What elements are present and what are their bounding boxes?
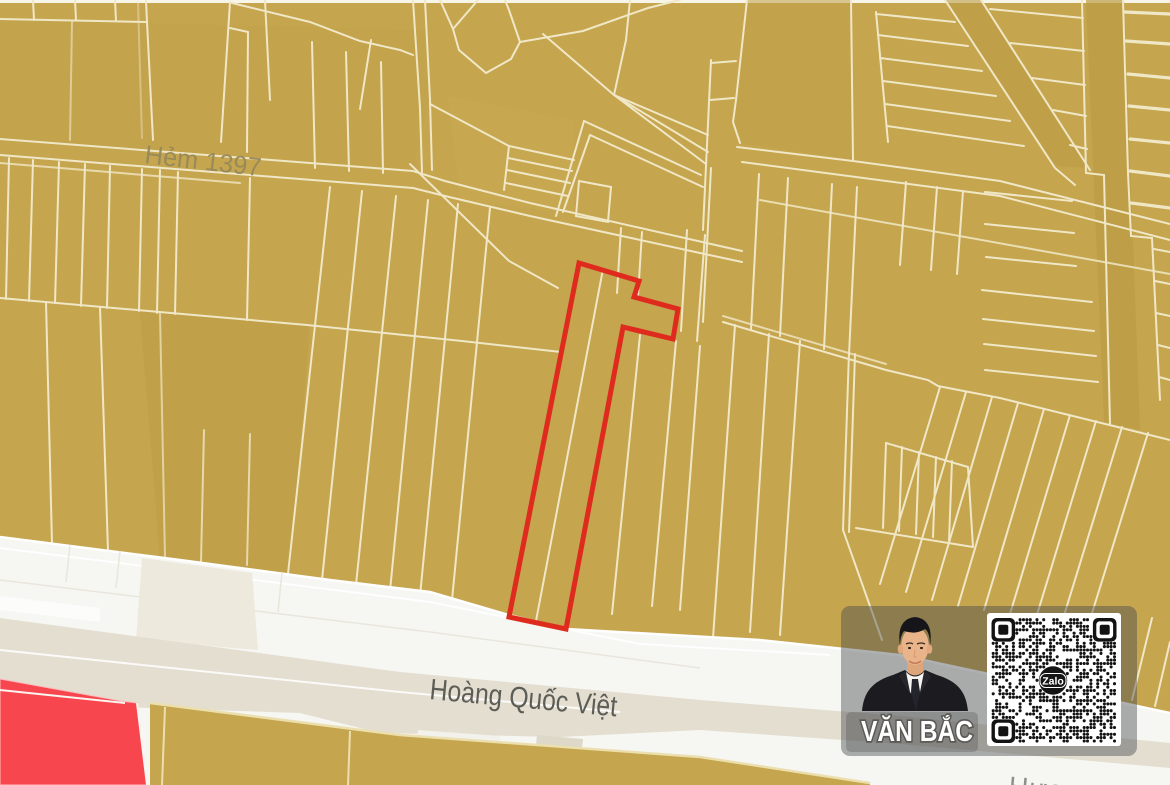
svg-text:Zalo: Zalo [1042,676,1064,688]
svg-text:VĂN BẮC: VĂN BẮC [861,715,973,748]
